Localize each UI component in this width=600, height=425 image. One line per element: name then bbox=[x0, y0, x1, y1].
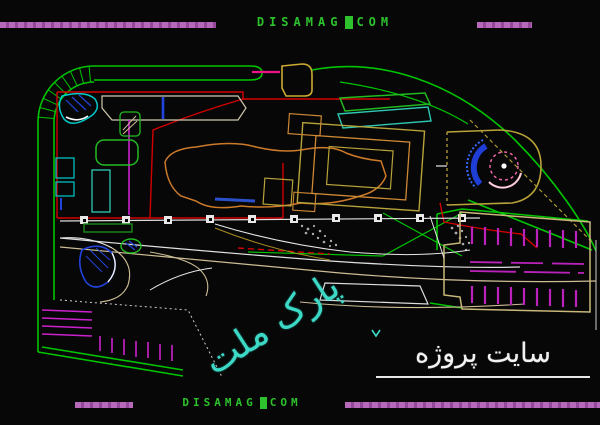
cad-screenshot: DISAMAG COM bbox=[0, 0, 600, 425]
bottom-watermark-right: COM bbox=[270, 396, 302, 409]
stipple-garden-west bbox=[301, 225, 337, 247]
bottom-left-magenta-bar bbox=[75, 402, 133, 408]
column-marker-row bbox=[60, 214, 480, 232]
central-lake bbox=[165, 144, 386, 208]
cursor-block-icon bbox=[260, 397, 267, 409]
bottom-right-magenta-bar bbox=[345, 402, 600, 408]
east-parking-lot bbox=[430, 212, 590, 312]
site-caption-label: سایت پروژه bbox=[376, 338, 590, 378]
upper-left-pond bbox=[59, 94, 97, 124]
west-lake bbox=[60, 238, 212, 302]
west-parking-stripes bbox=[42, 310, 172, 361]
bottom-watermark-left: DISAMAG bbox=[182, 396, 256, 409]
bottom-watermark: DISAMAG COM bbox=[158, 396, 326, 409]
